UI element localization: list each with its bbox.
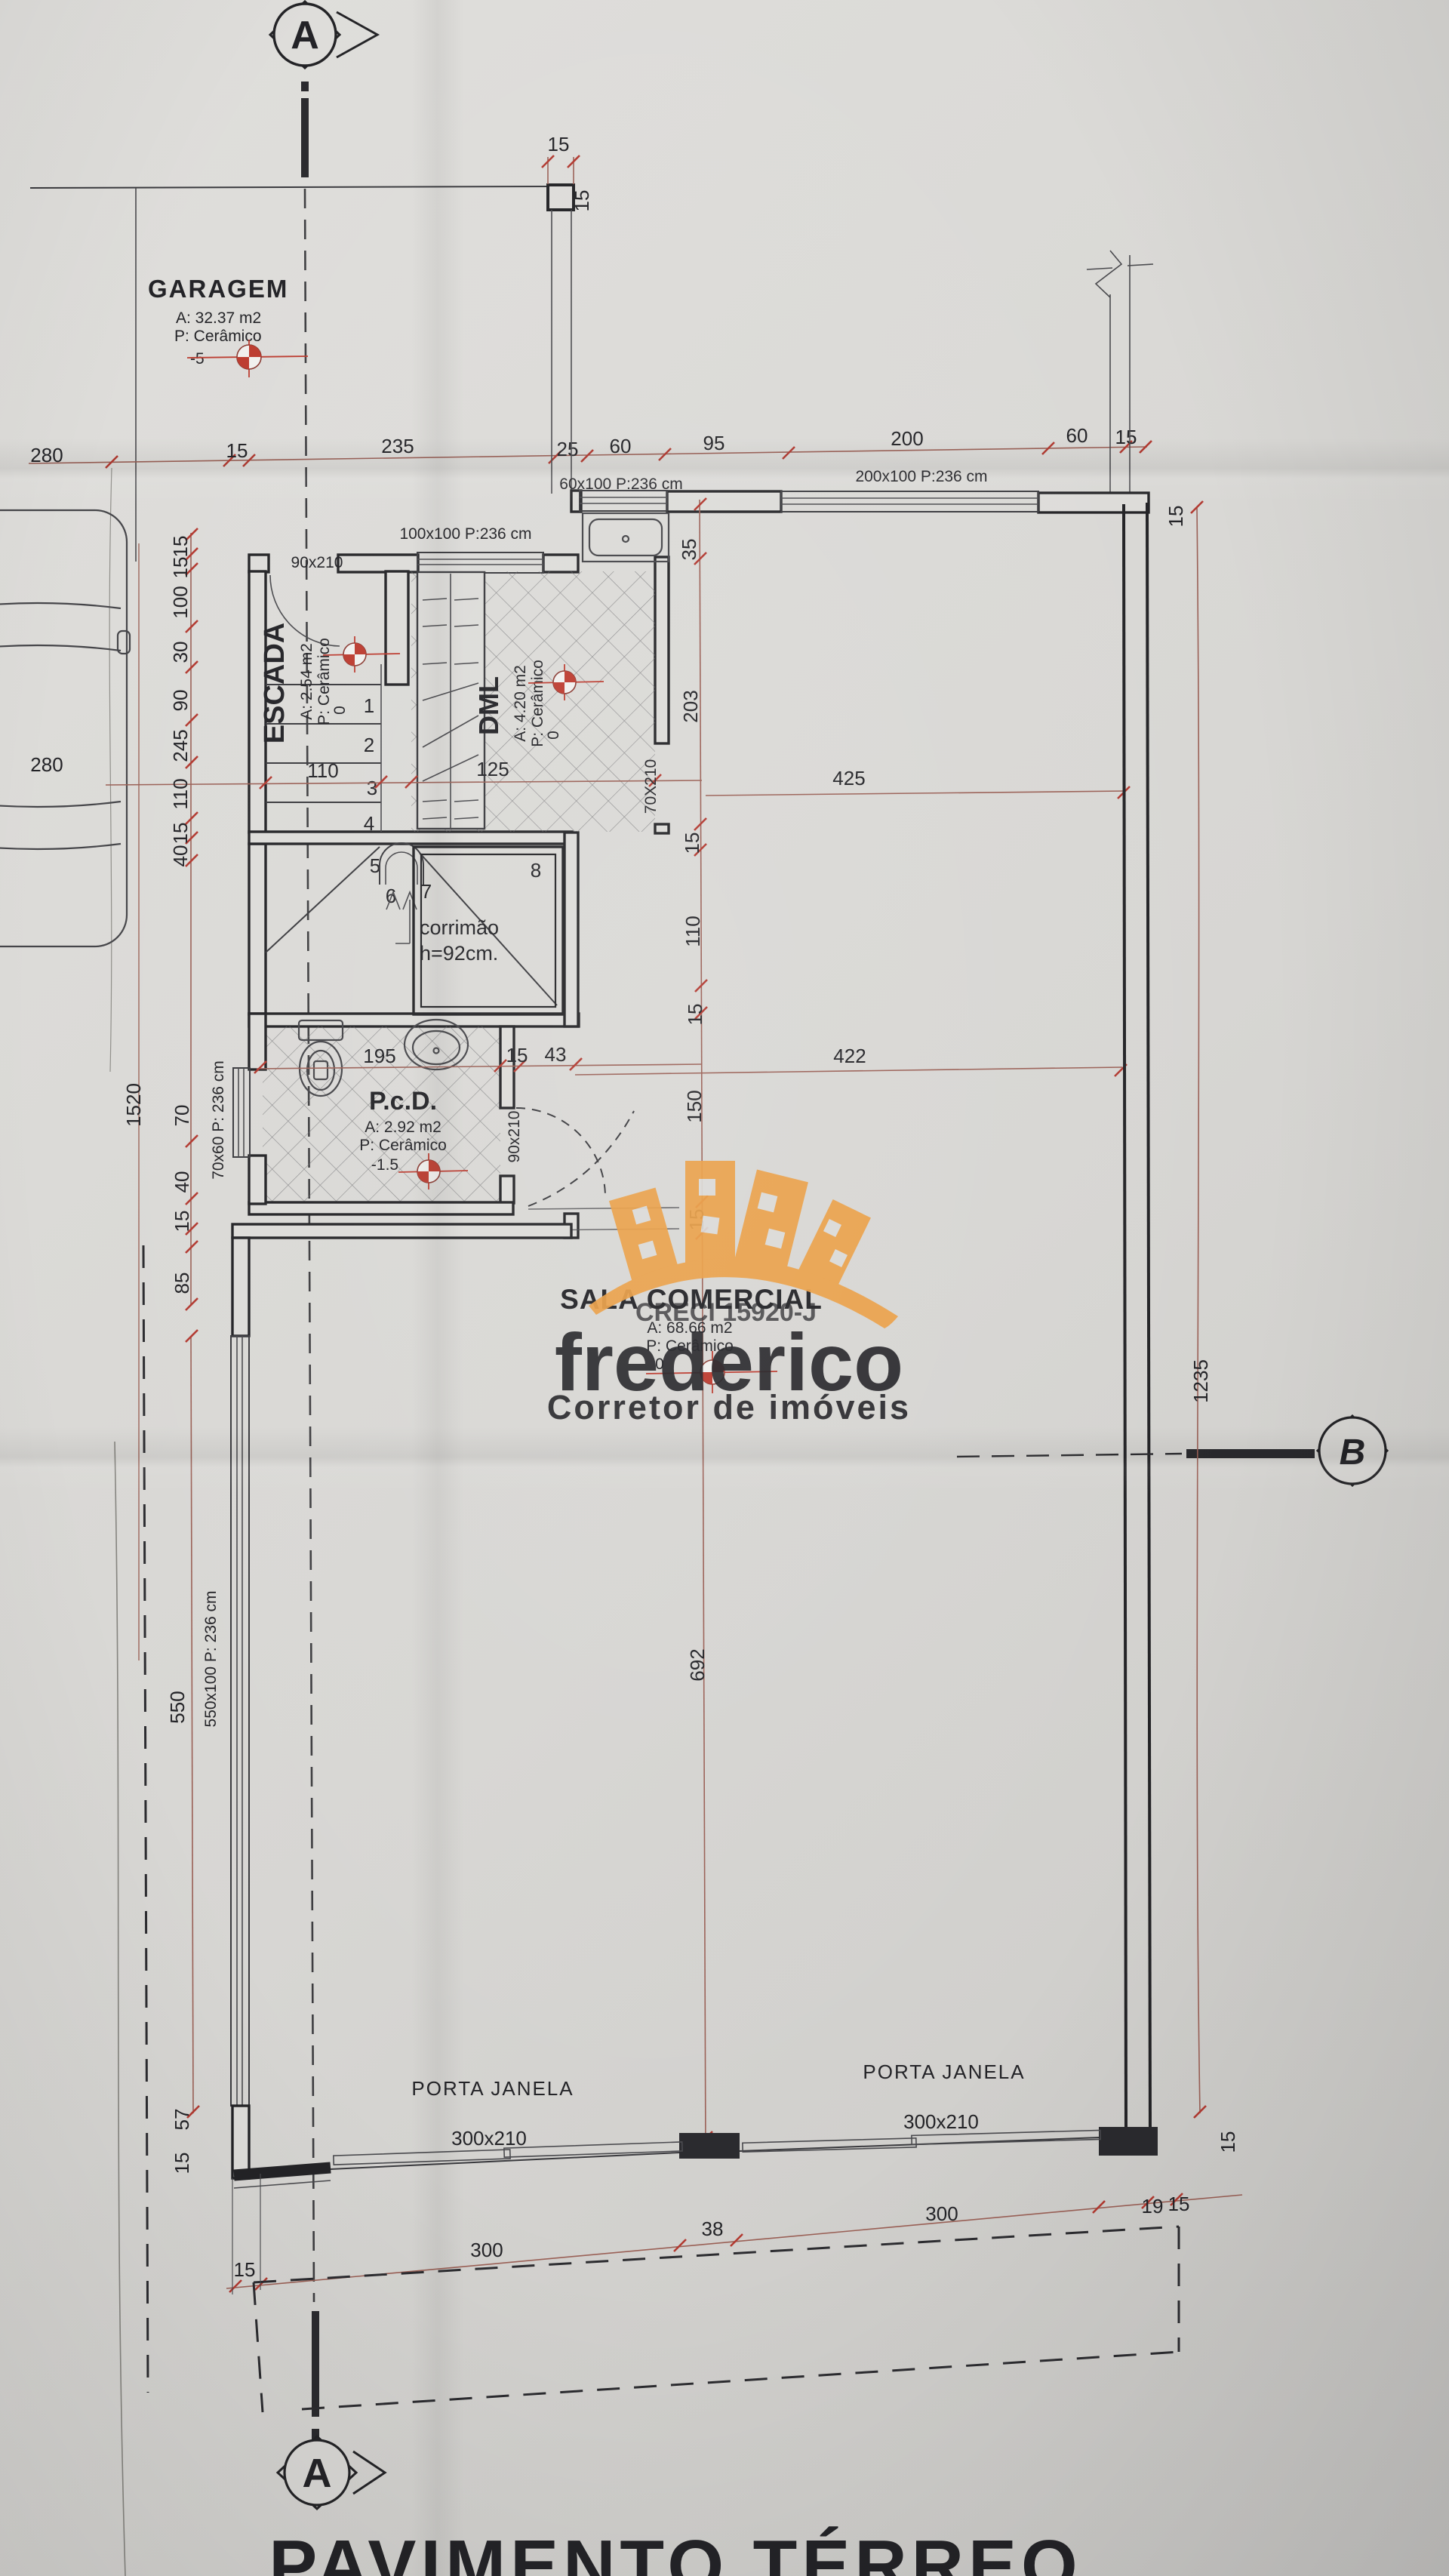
dim-550: 550 (166, 1691, 189, 1723)
bottom-wall (234, 2127, 1158, 2188)
room-garagem: GARAGEM A: 32.37 m2 P: Cerâmico -5 (148, 275, 308, 377)
dim-15b: 15 (1115, 426, 1137, 448)
section-marker-a-bottom: A (278, 2436, 385, 2509)
dim-wall15-v: 15 (571, 190, 593, 212)
dim-195: 195 (363, 1045, 395, 1067)
dim-235: 235 (381, 435, 414, 457)
dim-1235: 1235 (1189, 1359, 1212, 1403)
laundry-tub (583, 513, 669, 562)
ldim-70: 70 (171, 1105, 193, 1127)
dim-right-corner-15: 15 (1217, 2131, 1239, 2153)
tread-7: 7 (421, 880, 432, 903)
floorplan-sheet: A A 280 15 235 25 (0, 0, 1449, 2576)
dim-25: 25 (557, 438, 579, 460)
escada-area: A: 2.54 m2 (298, 643, 315, 720)
section-line-b (957, 1448, 1337, 1458)
dim-425: 425 (832, 767, 865, 789)
dml-level: 0 (545, 731, 562, 740)
pcd-level: -1.5 (371, 1156, 398, 1174)
section-marker-a-top: A (270, 2, 377, 68)
label-window-100: 100x100 P:236 cm (399, 525, 531, 543)
dim-bl-15: 15 (171, 2153, 193, 2174)
dim-15: 15 (226, 439, 248, 462)
dml-area: A: 4.20 m2 (512, 665, 529, 742)
ldim-15a: 15 (169, 536, 192, 558)
rdim-692: 692 (686, 1648, 709, 1681)
porta-janela-1-name: PORTA JANELA (411, 2077, 574, 2100)
label-window-60: 60x100 P:236 cm (559, 475, 682, 493)
section-letter-b: B (1340, 1433, 1366, 1473)
ldim-245: 245 (169, 729, 192, 762)
garagem-area: A: 32.37 m2 (176, 309, 261, 327)
section-marker-b: B (1318, 1416, 1387, 1485)
pcd-name: P.c.D. (369, 1087, 437, 1116)
rdim-203: 203 (679, 690, 702, 722)
right-total-dim: 1235 (1189, 501, 1212, 2118)
ldim-100: 100 (169, 586, 192, 618)
bdim-300b: 300 (925, 2202, 958, 2225)
ldim-15c: 15 (169, 823, 192, 845)
porta-janela-1-size: 300x210 (451, 2127, 527, 2150)
bdim-300a: 300 (470, 2239, 503, 2261)
porta-janela-2-name: PORTA JANELA (863, 2060, 1025, 2083)
ldim-1520: 1520 (122, 1083, 145, 1127)
tread-8: 8 (531, 859, 541, 882)
label-door-dml: 70X210 (642, 759, 660, 814)
garagem-name: GARAGEM (148, 275, 288, 303)
ldim-15d: 15 (171, 1211, 193, 1233)
room-dml: DML A: 4.20 m2 P: Cerâmico 0 (411, 571, 655, 832)
rdim-15a: 15 (681, 833, 703, 854)
door-arc-pcd (516, 1108, 605, 1199)
dashed-setback-rect (254, 2227, 1179, 2412)
ldim-40a: 40 (169, 845, 192, 867)
dml-name: DML (473, 676, 504, 735)
dim-60b: 60 (1066, 424, 1088, 447)
pcd-area: A: 2.92 m2 (365, 1119, 441, 1136)
escada-floor: P: Cerâmico (315, 638, 333, 725)
window-sala-550 (231, 1336, 249, 2106)
dim-garage-side: 280 (30, 753, 63, 776)
dim-pcd-43: 43 (545, 1043, 567, 1066)
watermark-tagline: Corretor de imóveis (547, 1388, 911, 1426)
level-marker-garagem (187, 340, 308, 377)
sheet-title: PAVIMENTO TÉRREO (269, 2525, 1081, 2576)
wall-break-symbol (1087, 251, 1153, 503)
pcd-floor: P: Cerâmico (359, 1137, 447, 1154)
window-200x100 (781, 491, 1038, 512)
label-door-escada: 90x210 (291, 554, 343, 571)
window-60x100 (580, 491, 667, 511)
bdim-38: 38 (702, 2217, 724, 2240)
dim-60: 60 (610, 435, 632, 457)
dim-wall15-h: 15 (548, 133, 570, 155)
dim-pcd-15: 15 (506, 1044, 528, 1066)
bdim-15b: 15 (1168, 2193, 1190, 2215)
dml-floor: P: Cerâmico (529, 660, 546, 747)
rdim-110: 110 (681, 916, 704, 946)
label-window-200: 200x100 P:236 cm (855, 468, 987, 485)
section-letter-bottom: A (303, 2451, 332, 2496)
ldim-110: 110 (169, 778, 192, 809)
corrimao-note-2: h=92cm. (420, 942, 498, 965)
rdim-15b: 15 (684, 1004, 706, 1026)
bdim-19: 19 (1142, 2195, 1164, 2217)
left-dim-column: 15 15 100 30 90 245 110 15 40 70 40 15 8… (122, 528, 198, 1660)
ldim-30: 30 (169, 642, 192, 663)
tread-4: 4 (364, 812, 374, 835)
label-window-pcd: 70x60 P: 236 cm (210, 1060, 227, 1180)
rdim-150: 150 (683, 1090, 706, 1122)
dim-280-top: 280 (30, 444, 63, 466)
dim-125-dml: 125 (476, 758, 509, 780)
dim-110-stair: 110 (307, 759, 338, 782)
label-door-pcd: 90x210 (506, 1111, 523, 1163)
section-line-a (301, 82, 319, 2439)
escada-level: 0 (331, 706, 349, 715)
corrimao-note-1: corrimão (420, 916, 499, 939)
top-dimension-row: 280 15 235 25 60 95 200 60 15 (29, 424, 1152, 468)
left-window-dims: 550x100 P: 236 cm 550 57 15 (166, 1330, 220, 2174)
window-pcd (233, 1068, 250, 1157)
floorplan-drawing: A A 280 15 235 25 (0, 0, 1449, 2576)
dim-200: 200 (891, 427, 923, 450)
ldim-85: 85 (171, 1273, 193, 1294)
tread-1: 1 (364, 694, 374, 717)
dim-topright15-v: 15 (1164, 506, 1187, 528)
ldim-40b: 40 (171, 1171, 193, 1193)
dim-422: 422 (833, 1045, 866, 1067)
section-letter-top: A (291, 14, 319, 57)
tread-2: 2 (364, 734, 374, 756)
sliding-door-2 (740, 2130, 1100, 2152)
window-100x100 (417, 552, 543, 573)
lot-lines (30, 186, 549, 2576)
door-arc-corridor (528, 1111, 634, 1206)
label-window-550: 550x100 P: 236 cm (202, 1591, 220, 1728)
porta-janela-2-size: 300x210 (903, 2110, 979, 2133)
dim-95: 95 (703, 432, 725, 454)
dim-57: 57 (171, 2109, 193, 2131)
rdim-35: 35 (678, 539, 700, 561)
bdim-15: 15 (234, 2258, 256, 2281)
ldim-90: 90 (169, 690, 192, 712)
escada-name: ESCADA (259, 623, 291, 743)
bottom-dim-row: 15 300 38 300 19 15 (226, 2193, 1242, 2292)
ldim-15b: 15 (169, 557, 192, 579)
garagem-level: -5 (190, 350, 205, 368)
